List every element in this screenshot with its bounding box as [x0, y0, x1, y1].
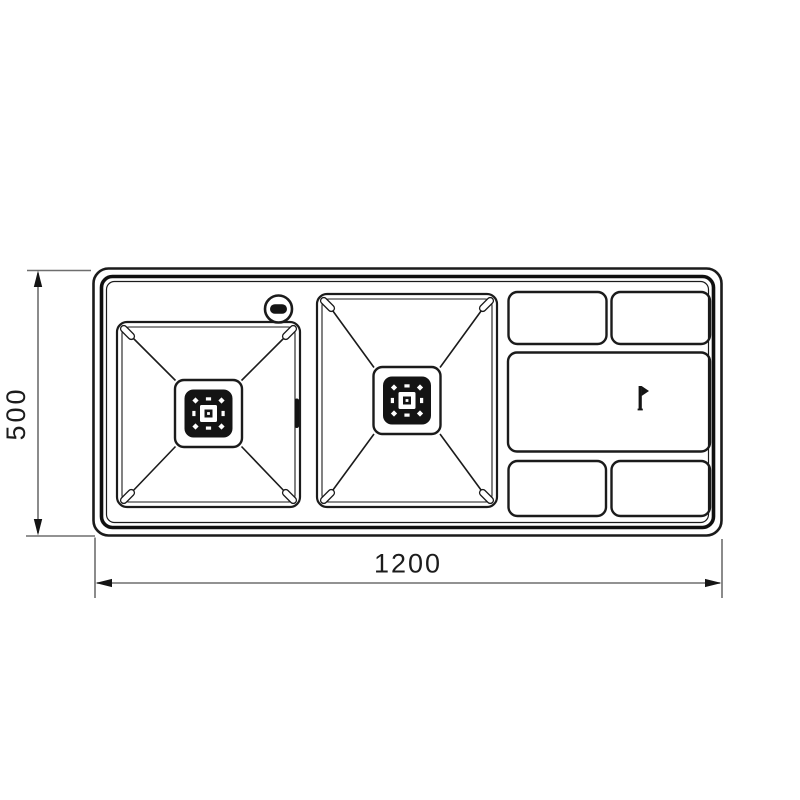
- right-bowl: [317, 294, 497, 507]
- tap-hole-icon: [265, 296, 292, 323]
- left-bowl: [117, 322, 300, 507]
- brand-flag-icon: [638, 386, 649, 410]
- drainer-panels: [508, 292, 710, 516]
- drainer-panel-bottom-right: [612, 461, 711, 516]
- overflow-slot-icon: [295, 399, 300, 429]
- sink-technical-drawing: 500 1200: [0, 0, 800, 800]
- arrowhead-right-icon: [705, 579, 722, 587]
- height-dimension: 500: [1, 271, 95, 537]
- arrowhead-up-icon: [34, 271, 42, 288]
- arrowhead-left-icon: [96, 579, 113, 587]
- right-bowl-drain-icon: [374, 367, 441, 434]
- drainer-panel-top-right: [612, 292, 711, 344]
- width-dimension: 1200: [95, 538, 722, 599]
- drainer-panel-middle: [508, 353, 710, 452]
- drainer-panel-top-left: [509, 292, 607, 344]
- width-dimension-label: 1200: [374, 549, 442, 579]
- left-bowl-drain-icon: [175, 380, 242, 447]
- height-dimension-label: 500: [1, 386, 31, 440]
- drainer-panel-bottom-left: [509, 461, 607, 516]
- arrowhead-down-icon: [34, 519, 42, 536]
